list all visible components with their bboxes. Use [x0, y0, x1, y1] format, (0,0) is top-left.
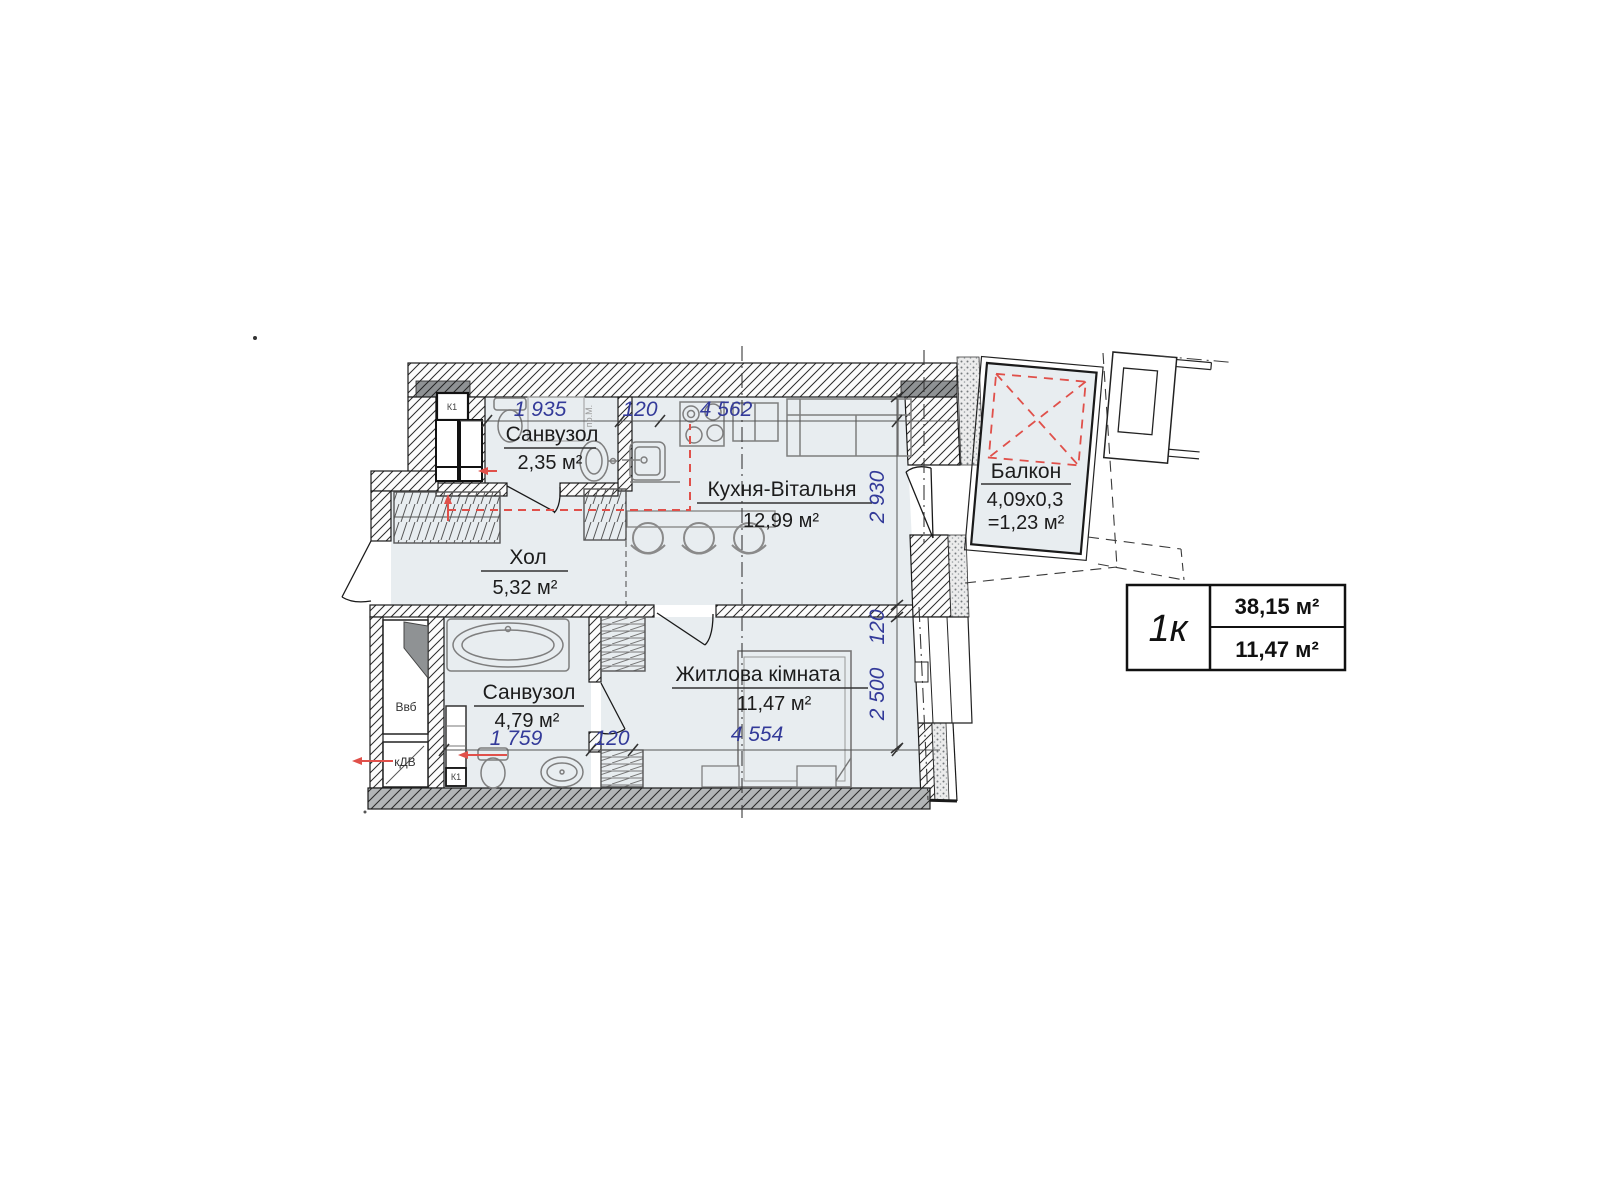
room-label-kitchen: Кухня-Вітальня	[707, 478, 856, 501]
stray-dot	[253, 336, 257, 340]
dim-top-3: 4 562	[700, 398, 753, 421]
hall-wardrobe-right	[584, 489, 626, 540]
dim-right-2: 120	[866, 609, 889, 644]
room-area-bedroom: 11,47 м²	[737, 693, 812, 715]
k1-label-top: К1	[447, 402, 457, 412]
k1-label-bottom: К1	[451, 772, 461, 782]
washer-label: пр.М.	[584, 405, 594, 427]
floor-plan-svg: Санвузол 2,35 м² Кухня-Вітальня 12,99 м²…	[0, 0, 1600, 1200]
dim-right-1: 2 930	[866, 470, 889, 524]
room-label-bathroom-bottom: Санвузол	[483, 681, 576, 704]
bedroom-wardrobe-bottom	[601, 750, 643, 787]
corner-block-right	[901, 381, 957, 397]
kdv-label: кДВ	[394, 755, 415, 769]
neighbor-balcony	[1104, 352, 1232, 468]
dim-top-1: 1 935	[514, 398, 567, 421]
room-area-bathroom-top: 2,35 м²	[518, 452, 583, 474]
floor-plan-page: Санвузол 2,35 м² Кухня-Вітальня 12,99 м²…	[0, 0, 1600, 1200]
stray-dot-2	[364, 811, 367, 814]
bathroom-cabinet	[446, 706, 466, 768]
room-area-hall: 5,32 м²	[493, 577, 558, 599]
bottom-wall	[368, 788, 930, 809]
room-label-hall: Хол	[509, 546, 546, 569]
dim-top-2: 120	[622, 398, 657, 421]
bedside-table-right	[797, 766, 836, 787]
apartment-type: 1к	[1148, 608, 1189, 650]
dim-bottom-3: 4 554	[731, 723, 784, 746]
bedroom-wardrobe-top	[601, 617, 645, 671]
room-size-balcony: 4,09х0,3	[987, 489, 1064, 511]
bedside-table-left	[702, 766, 739, 787]
vvb-label: Ввб	[395, 700, 416, 714]
room-label-balcony: Балкон	[991, 460, 1061, 483]
dim-right-3: 2 500	[866, 667, 889, 721]
dim-bottom-1: 1 759	[490, 727, 543, 750]
dim-bottom-2: 120	[594, 727, 629, 750]
room-area-balcony: =1,23 м²	[988, 512, 1065, 534]
living-area-value: 11,47 м²	[1235, 637, 1319, 662]
room-label-bedroom: Житлова кімната	[675, 663, 840, 686]
total-area-value: 38,15 м²	[1235, 594, 1320, 619]
door-entry	[342, 541, 371, 597]
room-area-kitchen: 12,99 м²	[743, 510, 819, 532]
summary-table: 1к 38,15 м² 11,47 м²	[1127, 585, 1345, 670]
right-wall-kitchen	[905, 397, 960, 465]
